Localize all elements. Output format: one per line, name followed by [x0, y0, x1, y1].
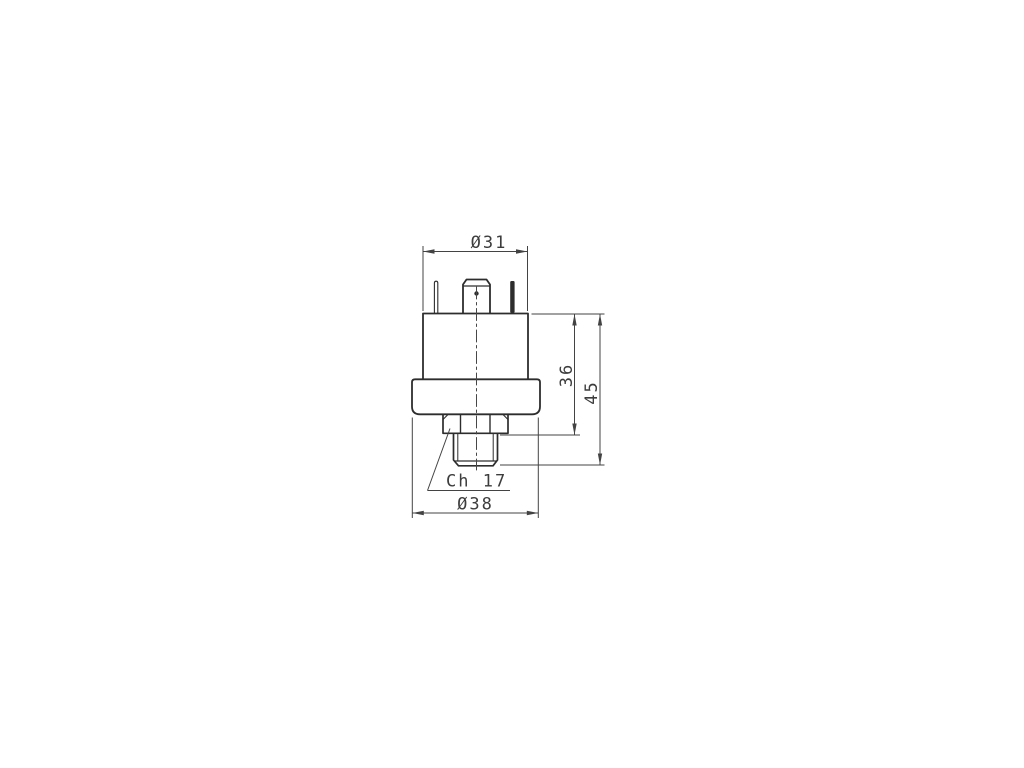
hex-nut-outline: [443, 414, 508, 433]
dim38-arrow-left: [412, 511, 424, 515]
technical-drawing: Ø31 36 45: [0, 0, 1024, 768]
terminal-pin-right: [510, 281, 514, 313]
dim38-label: Ø38: [457, 495, 494, 515]
dim31-arrow-left: [423, 249, 435, 253]
body-outline: [423, 314, 528, 380]
terminal-pin-left: [434, 281, 437, 313]
dim45-arrow-bottom: [598, 454, 602, 466]
dim45-arrow-top: [598, 314, 602, 326]
dim45-label: 45: [582, 380, 602, 404]
dim38-arrow-right: [527, 511, 539, 515]
dim36-arrow-top: [572, 314, 576, 326]
dim31-label: Ø31: [471, 233, 508, 253]
dimension-annotations: Ø31 36 45: [412, 233, 604, 518]
dim31-arrow-right: [516, 249, 528, 253]
dim-height-36: 36: [500, 314, 580, 435]
device-outline: [412, 280, 540, 471]
drawing-page: Ø31 36 45: [0, 0, 1024, 768]
dim36-arrow-bottom: [572, 424, 576, 436]
dim-height-45: 45: [500, 314, 605, 465]
dim36-label: 36: [557, 363, 577, 387]
threaded-stub: [454, 433, 498, 466]
ch17-label: Ch 17: [446, 472, 507, 492]
